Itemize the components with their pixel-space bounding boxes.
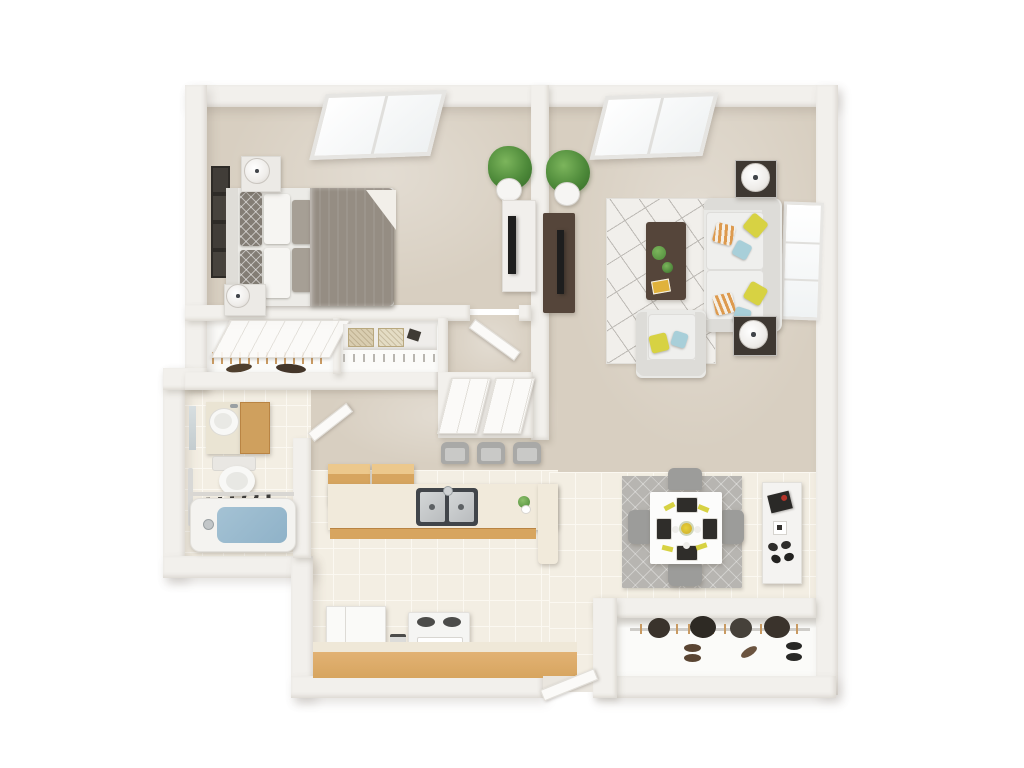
magazine bbox=[651, 279, 671, 295]
wall-closet-front bbox=[185, 372, 438, 390]
napkin-yellow bbox=[662, 545, 674, 553]
accent-pillow bbox=[240, 192, 262, 246]
sink-drain bbox=[429, 504, 435, 510]
window-mullion bbox=[786, 241, 820, 244]
table-lamp bbox=[741, 163, 770, 192]
stool-seat bbox=[517, 448, 537, 461]
wall-left-upper bbox=[185, 85, 207, 388]
dining-table bbox=[650, 492, 722, 564]
stool-seat bbox=[445, 448, 465, 461]
woven-basket bbox=[378, 328, 404, 347]
bedroom-closet-sliding-door bbox=[210, 320, 350, 358]
window-mullion bbox=[784, 278, 818, 281]
living-plant-pot bbox=[554, 182, 580, 206]
bar-stool bbox=[477, 442, 505, 464]
living-tv bbox=[557, 230, 564, 294]
shoe bbox=[684, 644, 701, 652]
sink-drain bbox=[458, 504, 464, 510]
burner bbox=[443, 617, 461, 627]
bed-pillow-small bbox=[292, 200, 312, 244]
bar-stool bbox=[513, 442, 541, 464]
wall-closet-bottom bbox=[593, 676, 836, 698]
wall-right bbox=[816, 85, 838, 695]
skylight-mullion bbox=[371, 96, 389, 154]
centerpiece-flowers bbox=[681, 523, 692, 534]
wall-bedroom-bottom-stub bbox=[519, 305, 531, 321]
placemat bbox=[676, 497, 698, 513]
wall-kitchen-bottom bbox=[291, 676, 543, 698]
decor-item-dark bbox=[770, 553, 783, 565]
vanity-cabinet bbox=[240, 402, 270, 454]
decor-item-dark bbox=[780, 540, 791, 550]
tabletop-plant bbox=[662, 262, 673, 273]
shoe bbox=[684, 654, 701, 662]
plate bbox=[683, 542, 690, 549]
placemat bbox=[656, 518, 672, 540]
wall-left-bath bbox=[163, 368, 185, 578]
napkin-yellow bbox=[697, 504, 709, 513]
dining-chair bbox=[668, 564, 702, 586]
bedroom-skylight bbox=[309, 90, 447, 160]
floorplan-render bbox=[0, 0, 1024, 768]
stool-seat bbox=[481, 448, 501, 461]
dining-chair bbox=[722, 510, 744, 544]
bathroom-sink bbox=[209, 408, 239, 436]
tub-faucet bbox=[203, 519, 214, 530]
wall-coat-closet-top bbox=[593, 598, 816, 618]
linen-closet-rod bbox=[343, 354, 437, 362]
bathroom-mirror bbox=[189, 406, 196, 450]
base-cabinet-strip bbox=[330, 528, 536, 539]
sink-bowl bbox=[214, 413, 232, 429]
napkin-yellow bbox=[663, 502, 675, 512]
bed-pillow bbox=[264, 194, 290, 244]
armchair-arm bbox=[636, 312, 647, 374]
wall-entry-stub bbox=[593, 598, 617, 698]
decor-item-dark bbox=[783, 552, 795, 563]
table-lamp bbox=[244, 158, 270, 184]
tabletop-plant bbox=[652, 246, 666, 260]
peninsula-counter-return bbox=[538, 484, 558, 564]
double-sink bbox=[416, 488, 478, 526]
decor-box-dot bbox=[777, 525, 782, 530]
armchair-arm bbox=[695, 312, 706, 374]
woven-basket bbox=[348, 328, 374, 347]
sofa bbox=[704, 198, 782, 332]
faucet bbox=[443, 486, 453, 496]
coffee-table bbox=[646, 222, 686, 300]
bed-pillow bbox=[264, 248, 290, 298]
napkin-yellow bbox=[695, 542, 707, 550]
armchair bbox=[636, 310, 706, 378]
wall-top bbox=[185, 85, 836, 107]
decor-box bbox=[773, 521, 787, 535]
plate bbox=[672, 526, 679, 533]
bed-pillow-small bbox=[292, 248, 312, 292]
dining-chair bbox=[668, 468, 702, 490]
skylight-mullion bbox=[647, 98, 664, 154]
decor-item-dark bbox=[767, 542, 779, 553]
bedroom-tv bbox=[508, 216, 516, 274]
shoe bbox=[786, 642, 802, 650]
base-cabinet-front bbox=[313, 652, 577, 678]
burner bbox=[417, 617, 435, 627]
toilet-seat-ring bbox=[226, 472, 248, 490]
bathtub bbox=[190, 498, 296, 552]
sink-faucet bbox=[230, 404, 238, 408]
placemat bbox=[702, 518, 718, 540]
table-lamp bbox=[739, 320, 768, 349]
decor-red-accent bbox=[780, 494, 787, 501]
decor-tray bbox=[767, 491, 793, 514]
bar-stool bbox=[441, 442, 469, 464]
living-window bbox=[780, 201, 824, 320]
bathtub-water bbox=[217, 507, 287, 543]
plate bbox=[694, 526, 701, 533]
dining-chair bbox=[628, 510, 650, 544]
bedroom-plant-pot bbox=[496, 178, 522, 202]
table-lamp bbox=[226, 284, 250, 308]
sofa-arm bbox=[704, 198, 780, 210]
counter-plant-pot bbox=[521, 505, 531, 514]
living-skylight bbox=[589, 92, 718, 160]
shoe bbox=[786, 653, 802, 661]
sideboard bbox=[762, 482, 802, 584]
throw-pillow-stripe bbox=[712, 292, 736, 316]
